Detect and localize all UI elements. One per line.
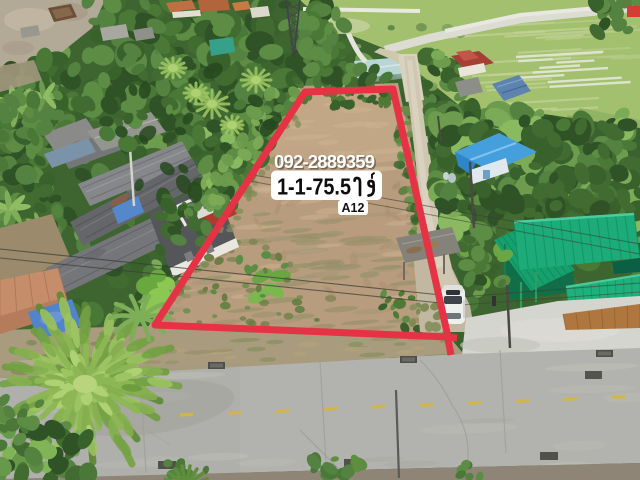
svg-text:1-1-75.5: 1-1-75.5 <box>277 174 351 200</box>
svg-text:092-2889359: 092-2889359 <box>274 151 375 172</box>
svg-text:A12: A12 <box>342 201 365 215</box>
